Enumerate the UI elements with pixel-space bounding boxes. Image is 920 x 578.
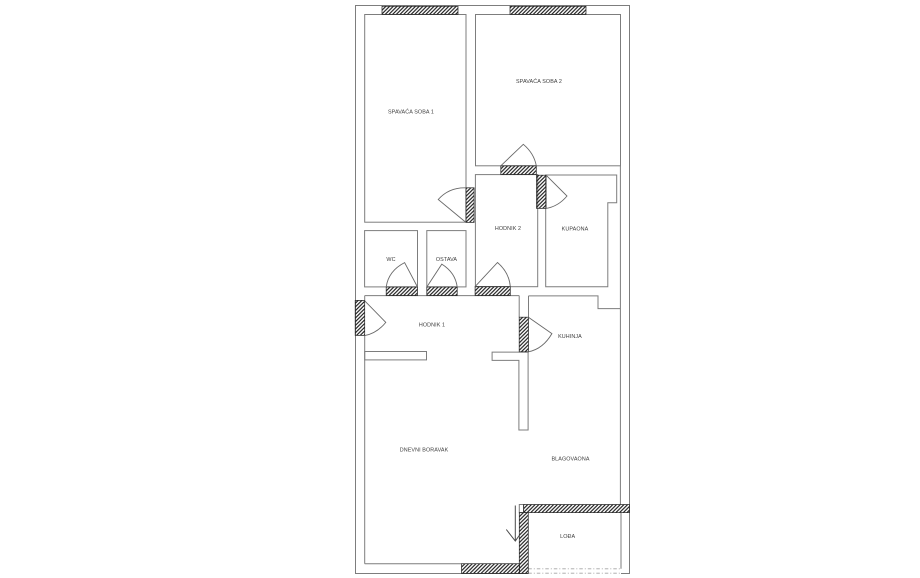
- svg-text:HODNIK 2: HODNIK 2: [495, 226, 521, 232]
- svg-text:KUPAONA: KUPAONA: [562, 227, 589, 233]
- svg-text:BLAGOVAONA: BLAGOVAONA: [551, 457, 589, 463]
- svg-text:KUHINJA: KUHINJA: [558, 334, 582, 340]
- svg-text:DNEVNI BORAVAK: DNEVNI BORAVAK: [400, 447, 449, 453]
- svg-text:SPAVAĆA SOBA 2: SPAVAĆA SOBA 2: [516, 78, 562, 85]
- svg-text:OSTAVA: OSTAVA: [436, 257, 458, 263]
- svg-text:WC: WC: [386, 257, 395, 263]
- svg-text:HODNIK 1: HODNIK 1: [419, 322, 445, 328]
- svg-text:SPAVAĆA SOBA 1: SPAVAĆA SOBA 1: [388, 109, 434, 116]
- svg-text:LOĐA: LOĐA: [560, 534, 575, 540]
